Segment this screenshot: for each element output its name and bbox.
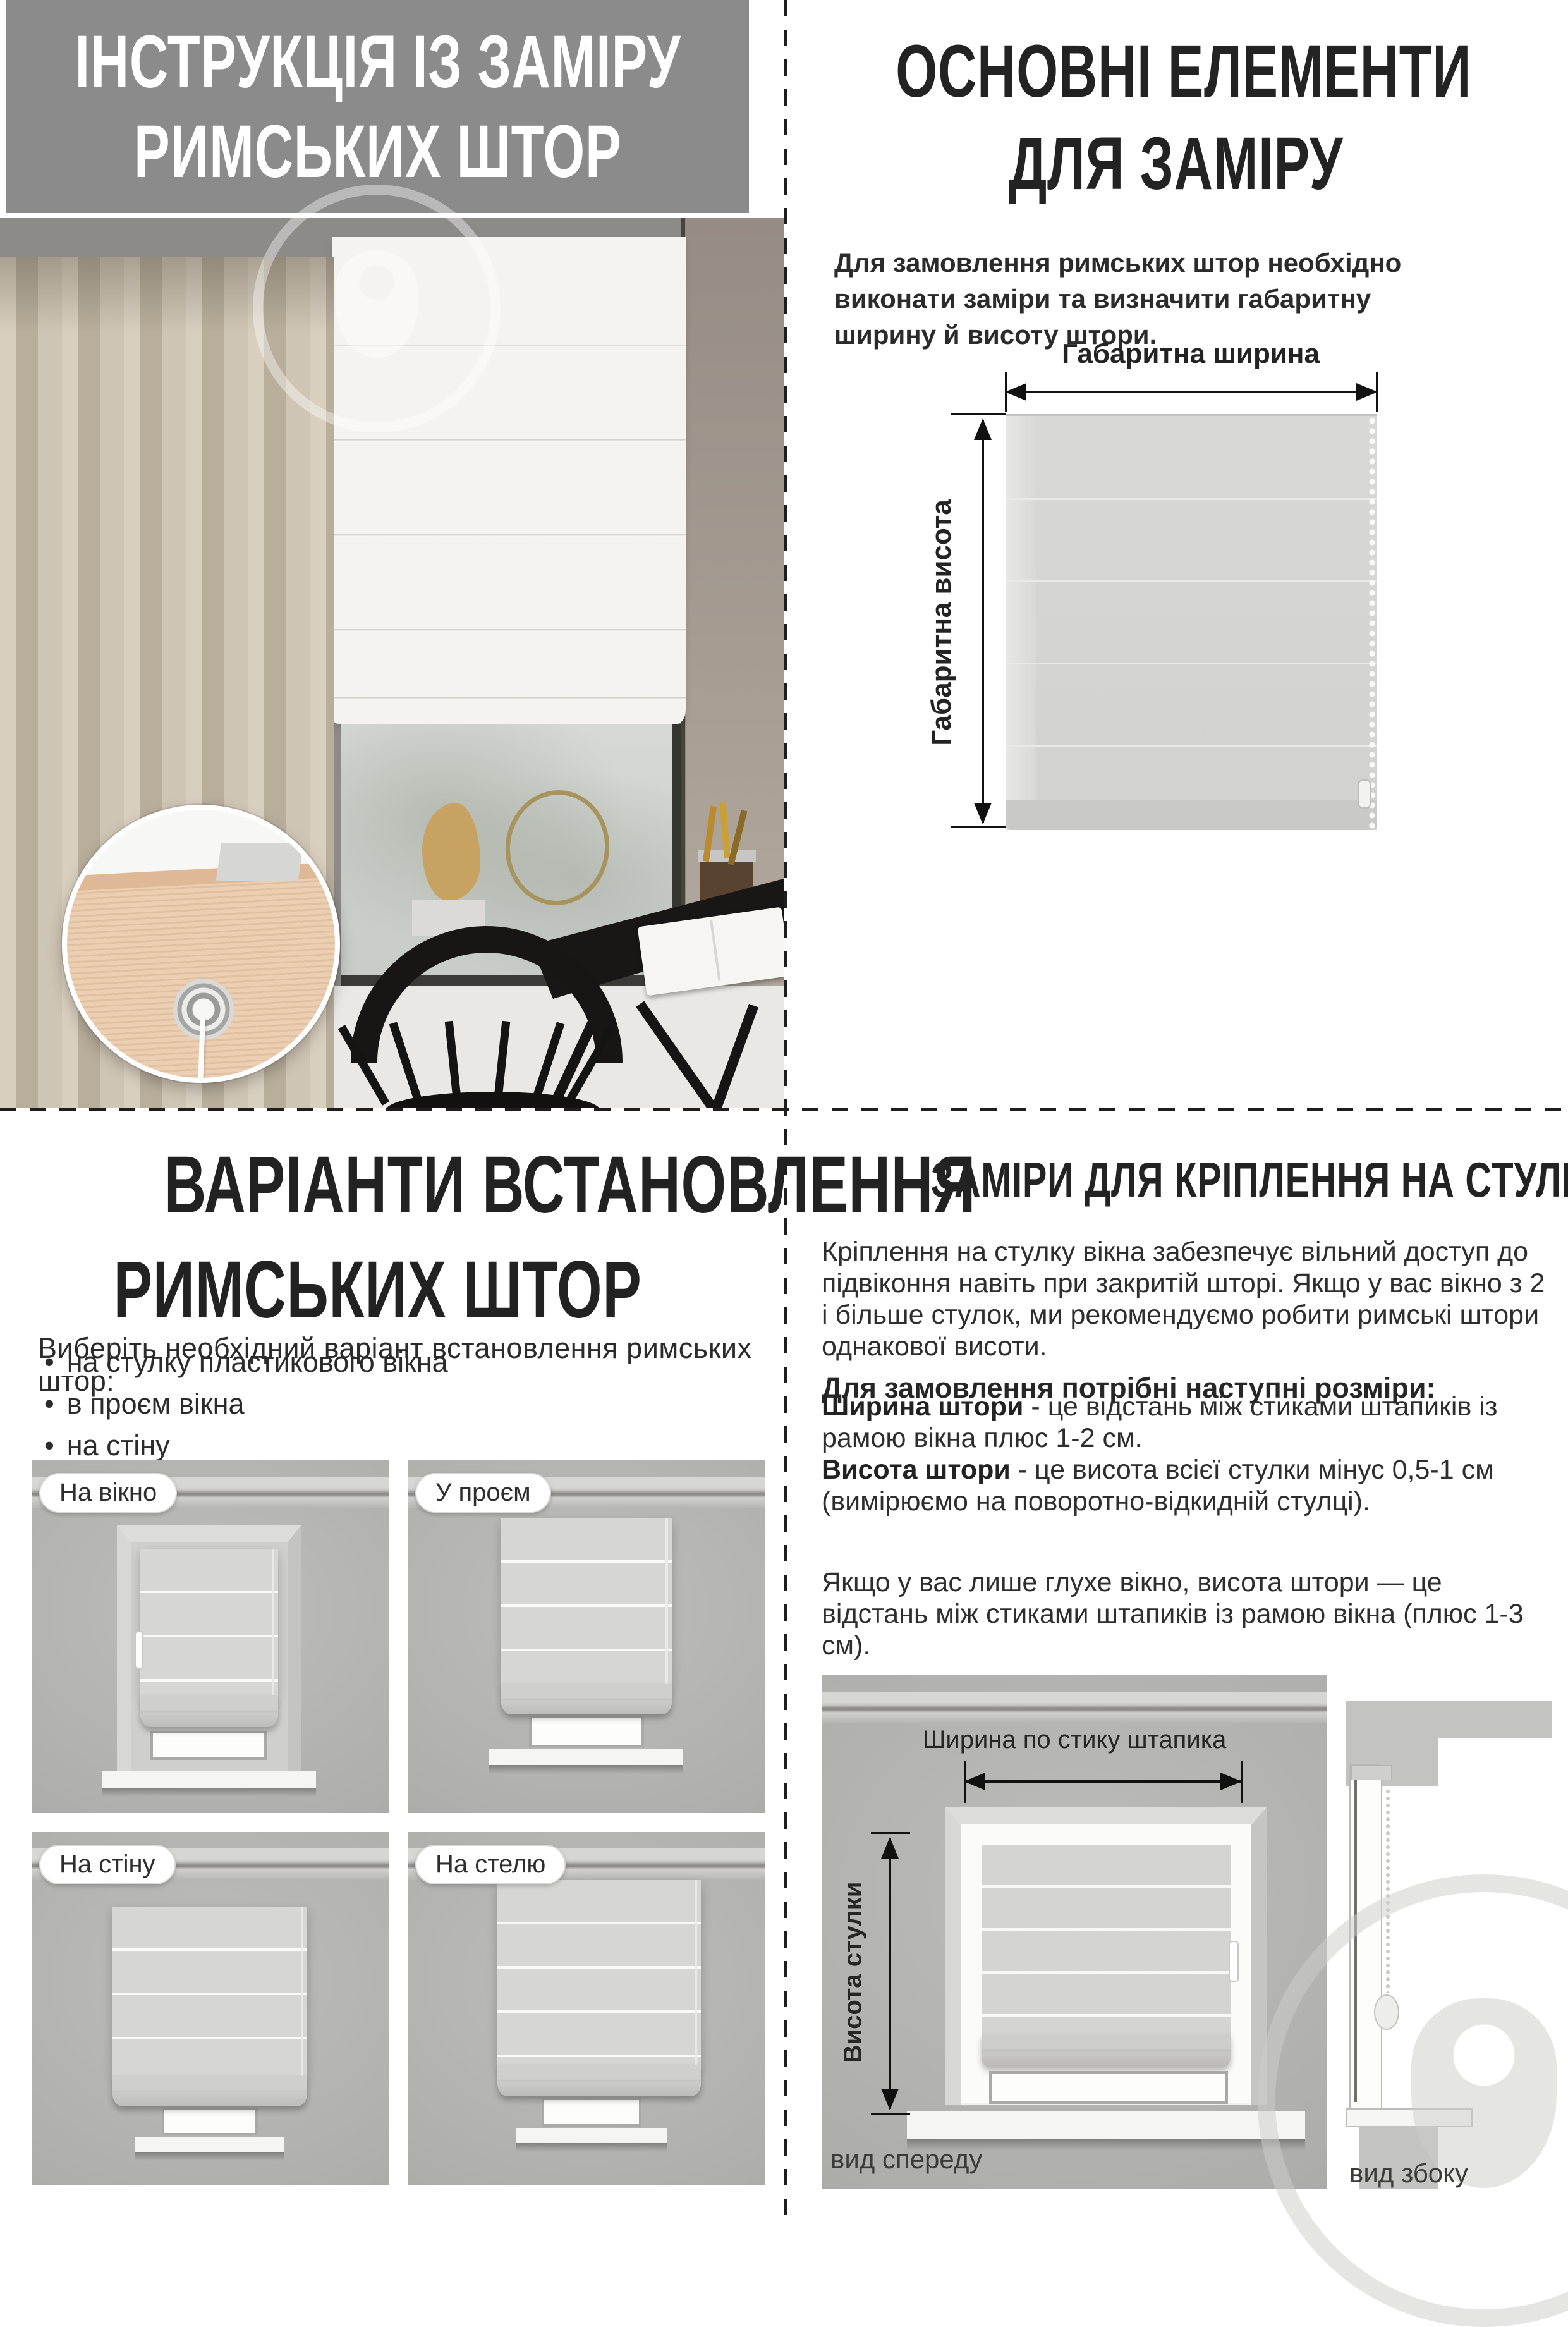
- arrow-head-left: [964, 1773, 985, 1790]
- glass-line: [1354, 1770, 1357, 2102]
- blind-chain-handle: [1358, 779, 1371, 809]
- arrow-head-up: [881, 1837, 899, 1859]
- instruction-leaflet: ІНСТРУКЦІЯ ІЗ ЗАМІРУ РИМСЬКИХ ШТОР: [0, 0, 1568, 2218]
- section-title: ЗАМІРИ ДЛЯ КРІПЛЕННЯ НА СТУЛКУ ВІКНА: [790, 1149, 1562, 1210]
- list-item: •на стулку пластикового вікна: [44, 1345, 739, 1379]
- blind-folded-stack: [501, 1684, 672, 1714]
- roman-blind: [140, 1549, 278, 1695]
- overall-height-label: Габаритна висота: [926, 499, 957, 746]
- front-view-caption: вид спереду: [830, 2144, 982, 2175]
- width-tick-left: [1005, 372, 1007, 412]
- crown-molding: [822, 1692, 1327, 1723]
- blind-fold-line: [332, 534, 686, 537]
- side-view-diagram: вид збоку: [1346, 1675, 1566, 2189]
- blind-folded-stack: [982, 2034, 1231, 2067]
- window-glass: [529, 1716, 644, 1747]
- sash-height-label: Висота стулки: [839, 1882, 868, 2063]
- section-title-line1: ОСНОВНІ ЕЛЕМЕНТИ: [896, 25, 1471, 118]
- sash-width-arrow: [965, 1780, 1241, 1783]
- windowsill-shadow: [516, 2143, 667, 2152]
- roman-blind: [112, 1907, 307, 2076]
- page-title-line2: РИМСЬКИХ ШТОР: [134, 107, 621, 197]
- variant-label-pill: На вікно: [39, 1473, 177, 1513]
- list-item-label: на стіну: [67, 1429, 170, 1463]
- header-banner: ІНСТРУКЦІЯ ІЗ ЗАМІРУ РИМСЬКИХ ШТОР: [6, 0, 749, 213]
- blind-closeup-inset: [62, 805, 340, 1083]
- chain-weight: [1374, 1994, 1399, 2030]
- section-title-line2: РИМСЬКИХ ШТОР: [114, 1238, 642, 1343]
- blind-folded-stack: [497, 2065, 701, 2096]
- windowsill: [516, 2128, 667, 2143]
- arrow-head-down: [974, 803, 992, 824]
- window-glass: [542, 2098, 641, 2127]
- variant-image-in-opening: У проєм: [408, 1460, 765, 1813]
- list-item-label: в проєм вікна: [67, 1387, 245, 1421]
- section-title: ОСНОВНІ ЕЛЕМЕНТИ ДЛЯ ЗАМІРУ: [784, 25, 1568, 210]
- window-handle: [135, 1631, 143, 1669]
- list-item-label: на стулку пластикового вікна: [67, 1345, 448, 1379]
- blind-fold-line: [1006, 663, 1377, 664]
- blind-chain: [1385, 1781, 1390, 1993]
- blind-fold-line: [332, 697, 686, 700]
- section-title: ВАРІАНТИ ВСТАНОВЛЕННЯ РИМСЬКИХ ШТОР: [6, 1133, 749, 1343]
- sash-width-label: Ширина по стику штапика: [822, 1726, 1327, 1754]
- body-paragraph: Кріплення на стулку вікна забезпечує віл…: [822, 1236, 1555, 1362]
- bullet-dot: •: [44, 1387, 54, 1421]
- height-term: Висота штори: [822, 1455, 1011, 1485]
- arrow-head-right: [1220, 1773, 1242, 1790]
- blind-cord: [272, 1549, 274, 1695]
- list-item: •в проєм вікна: [44, 1387, 739, 1421]
- width-tick-right: [1376, 372, 1378, 412]
- bullet-dot: •: [44, 1345, 54, 1379]
- page-title-line1: ІНСТРУКЦІЯ ІЗ ЗАМІРУ: [75, 17, 681, 107]
- windowsill-shadow: [489, 1765, 683, 1774]
- sash-height-arrow: [889, 1838, 891, 2109]
- window-glass: [150, 1731, 267, 1760]
- overall-height-arrow: [982, 420, 984, 823]
- blind-fold-line: [1006, 580, 1377, 582]
- bullet-dot: •: [44, 1429, 54, 1463]
- variant-image-on-ceiling: На стелю: [408, 1832, 765, 2185]
- variant-label-pill: На стіну: [39, 1845, 176, 1884]
- variant-label-pill: На стелю: [415, 1845, 566, 1884]
- window-glass: [989, 2071, 1228, 2104]
- blind-bracket: [1351, 1765, 1392, 1780]
- width-tick-right: [1241, 1761, 1243, 1803]
- windowsill-section: [1346, 2108, 1473, 2127]
- blind-cord: [695, 1880, 697, 2065]
- side-view-caption: вид збоку: [1349, 2158, 1468, 2189]
- blind-fold-line: [1006, 745, 1377, 747]
- height-tick-bottom: [951, 826, 1006, 828]
- diagram-roman-blind: [1006, 414, 1377, 830]
- height-tick-top: [871, 1832, 910, 1834]
- roman-blind: [501, 1518, 672, 1684]
- blind-bottom-hem: [1006, 800, 1377, 830]
- height-tick-top: [951, 413, 1006, 415]
- horizontal-dashed-divider: [0, 1108, 1568, 1111]
- arrow-head-right: [1356, 383, 1378, 401]
- roman-blind: [982, 1845, 1231, 2034]
- list-item: •на стіну: [44, 1429, 739, 1463]
- section-title-text: ЗАМІРИ ДЛЯ КРІПЛЕННЯ НА СТУЛКУ ВІКНА: [931, 1149, 1568, 1210]
- windowsill: [907, 2111, 1305, 2139]
- blind-fold-line: [332, 629, 686, 632]
- photo-decor-sculpture: [422, 803, 480, 901]
- variant-image-on-window: На вікно: [32, 1460, 389, 1813]
- windowsill-shadow: [102, 1788, 316, 1797]
- note-paragraph: Якщо у вас лише глухе вікно, висота штор…: [822, 1567, 1555, 1661]
- blind-folded-stack: [140, 1695, 278, 1727]
- windowsill-shadow: [135, 2152, 284, 2161]
- variant-image-on-wall: На стіну: [32, 1832, 389, 2185]
- size-definitions: Ширина штори - це відстань між стиками ш…: [822, 1391, 1555, 1517]
- blind-side-hem: [1006, 416, 1036, 830]
- overall-width-arrow: [1006, 391, 1377, 393]
- photo-book-gutter: [710, 920, 720, 981]
- blind-fold-line: [332, 345, 686, 347]
- blind-cord: [665, 1518, 668, 1684]
- photo-roman-blind: [332, 237, 686, 724]
- blind-folded-stack: [112, 2076, 307, 2106]
- width-term: Ширина штори: [822, 1391, 1023, 1422]
- roman-blind: [497, 1880, 701, 2065]
- arrow-head-left: [1005, 383, 1026, 401]
- height-tick-bottom: [871, 2113, 910, 2115]
- hero-photo: [0, 218, 784, 1108]
- overall-width-label: Габаритна ширина: [1005, 338, 1377, 370]
- windowsill: [489, 1749, 683, 1765]
- width-tick-left: [964, 1761, 966, 1803]
- arrow-head-up: [974, 418, 992, 440]
- inset-mounting-bracket: [216, 843, 303, 881]
- intro-paragraph: Для замовлення римських штор необхідно в…: [834, 245, 1473, 353]
- arrow-head-down: [881, 2089, 899, 2110]
- window-glass: [162, 2108, 258, 2135]
- blind-fold-line: [332, 439, 686, 442]
- blind-chain: [1368, 416, 1377, 830]
- blind-cord: [301, 1907, 303, 2076]
- windowsill: [135, 2137, 284, 2152]
- photo-chair-back: [351, 926, 623, 1063]
- photo-chair: [351, 926, 623, 1108]
- section-title-line2: ДЛЯ ЗАМІРУ: [1009, 118, 1343, 210]
- windowsill: [102, 1771, 316, 1788]
- window-handle: [1229, 1941, 1239, 1982]
- blind-fold-line: [1006, 498, 1377, 500]
- variant-label-pill: У проєм: [415, 1473, 551, 1513]
- front-view-diagram: Ширина по стику штапика Висота стулки: [822, 1675, 1327, 2189]
